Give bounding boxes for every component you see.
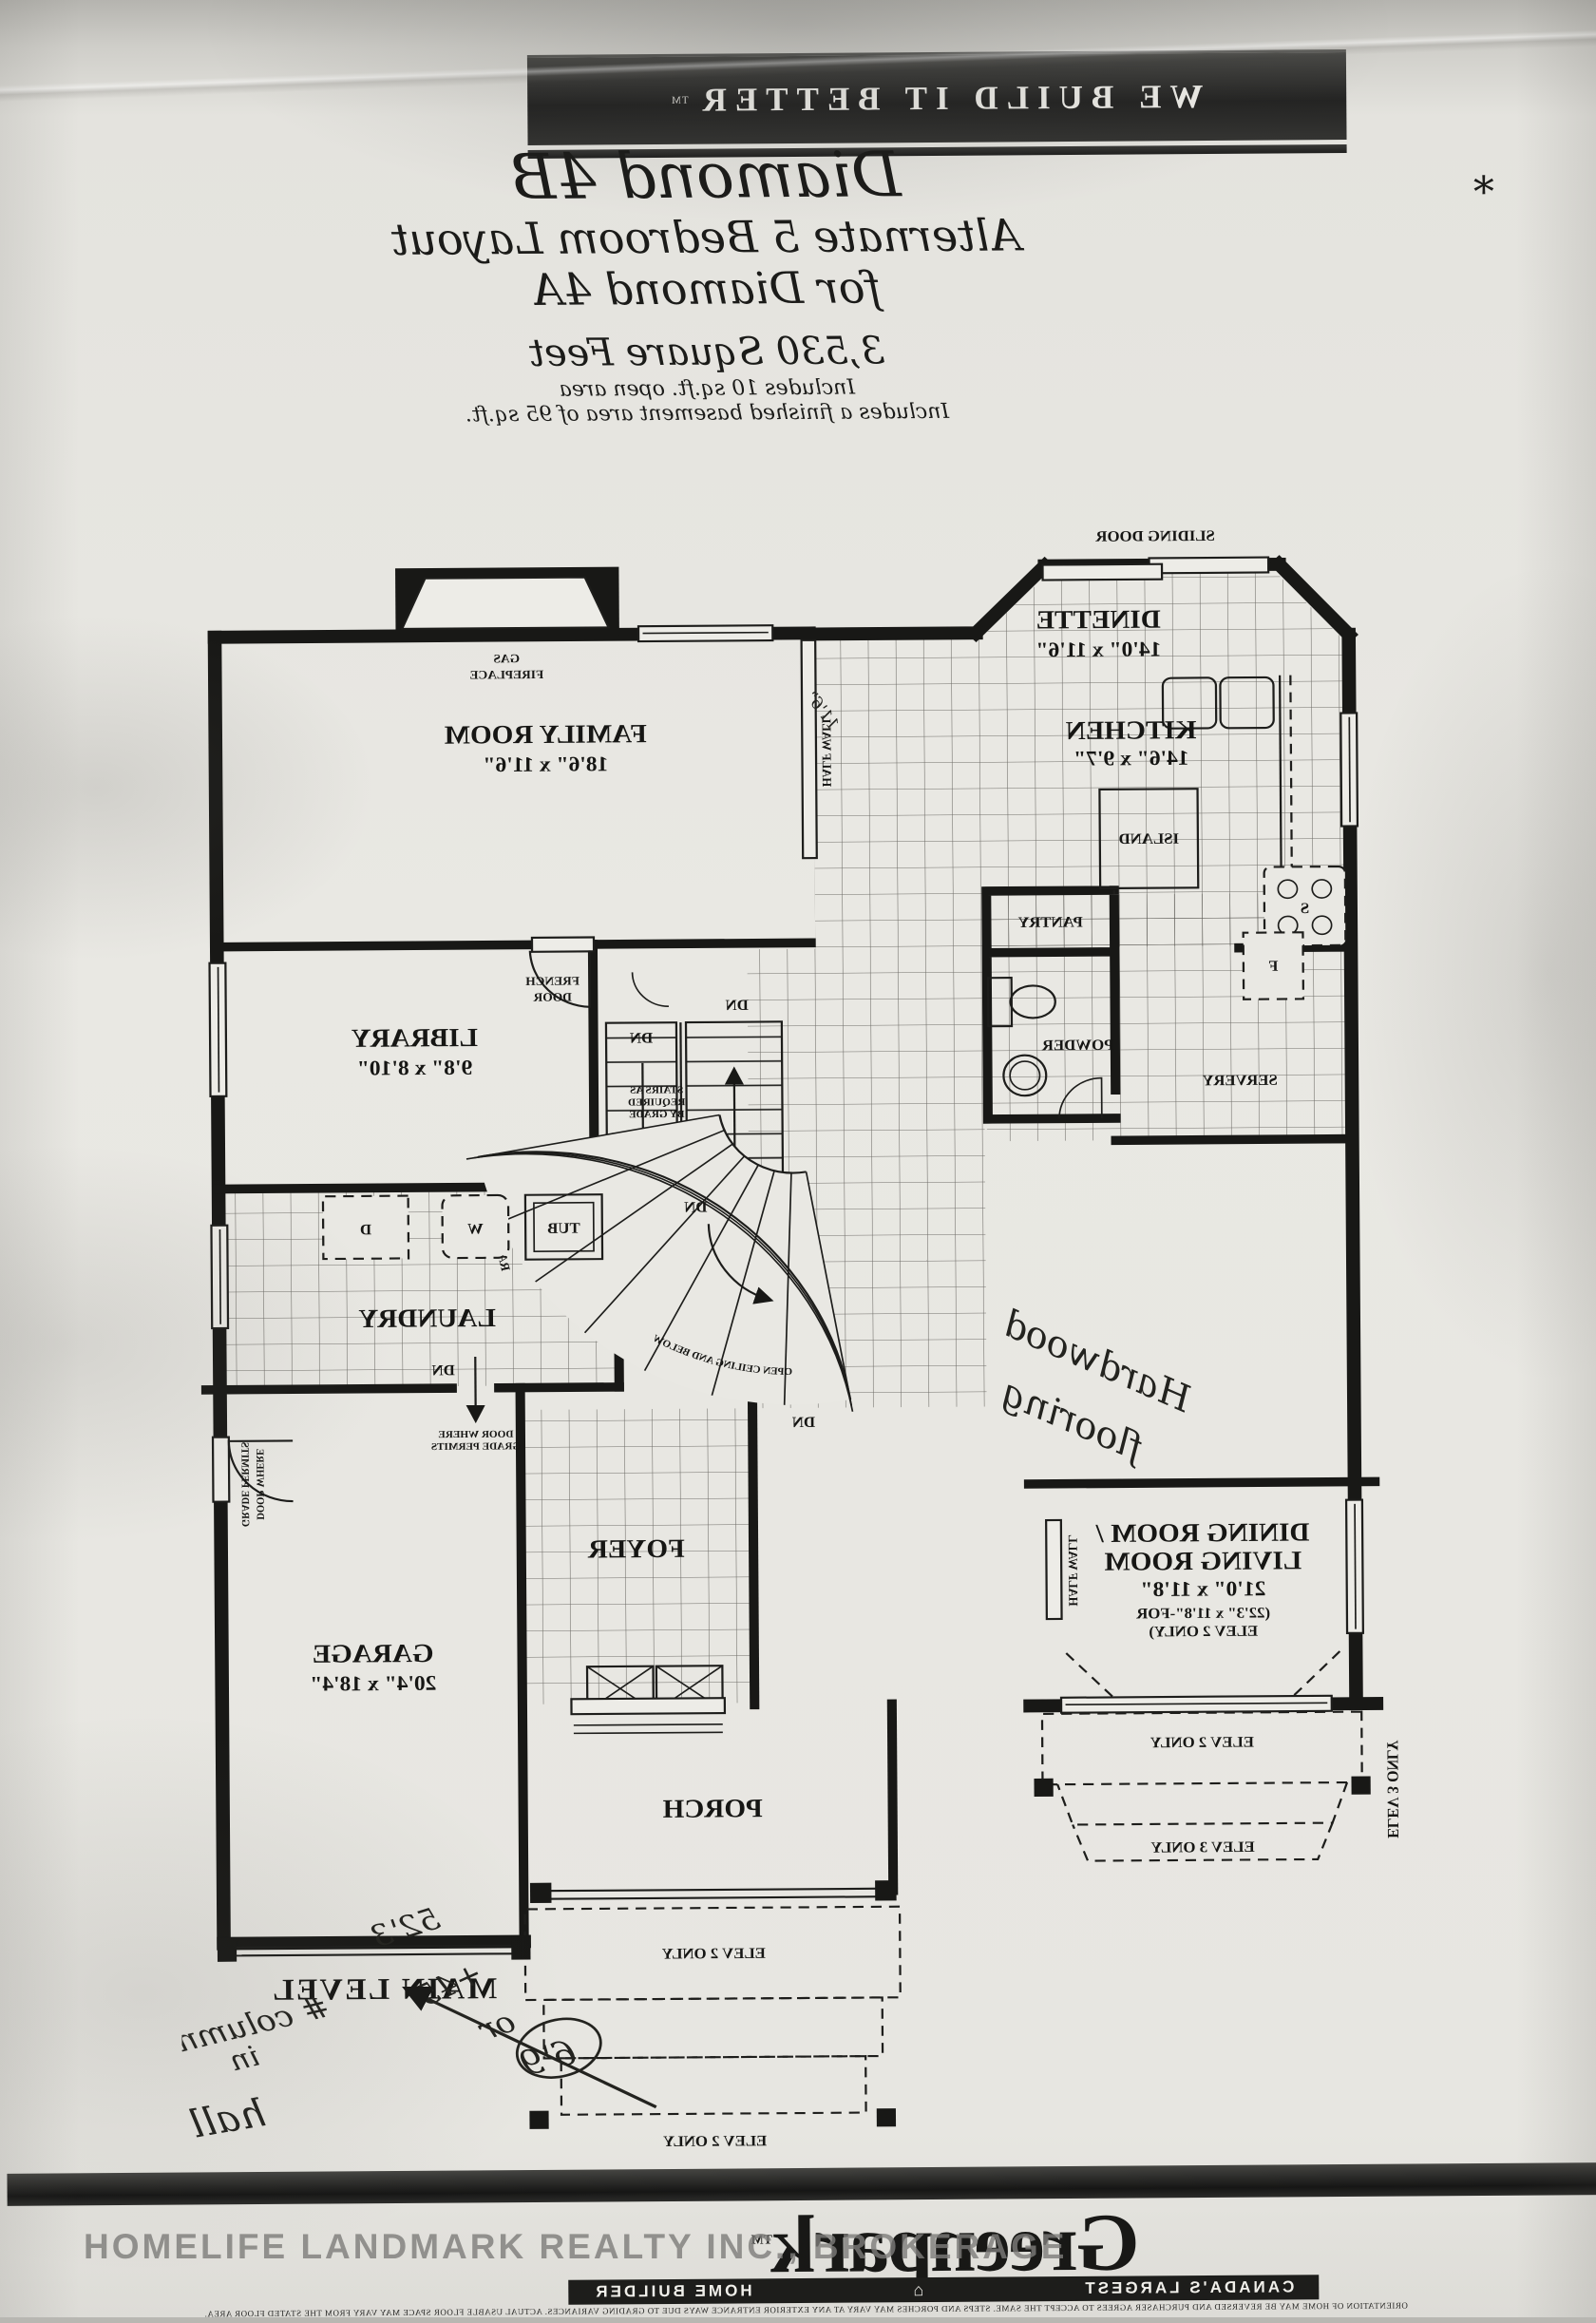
dryer-label: D [360, 1221, 371, 1239]
porch: ELEV 2 ONLY ELEV 2 ONLY [524, 1880, 901, 2151]
dining-alt1: (22'3" x 11'8"-FOR [1136, 1604, 1270, 1622]
family-dims: 18'6" x 11'6" [483, 752, 608, 776]
library-name: LIBRARY [351, 1024, 479, 1054]
garage-dims: 20'4" x 18'4" [310, 1671, 436, 1695]
french-door-label-2: DOOR [533, 990, 572, 1004]
dinette-dims: 14'0" x 11'6" [1035, 638, 1161, 661]
foyer-label: FOYER [587, 1534, 685, 1564]
fridge-label: F [1268, 957, 1278, 975]
hw-c3: hall wall. [171, 2089, 269, 2165]
garage-door-grade-2: GRADE PERMITS [238, 1442, 251, 1527]
floor-plan-sheet: WE BUILD IT BETTERTM Diamond 4B Alternat… [0, 0, 1596, 2323]
servery-label: SERVERY [1202, 1071, 1277, 1089]
builder-tagline-bar: CANADA'S LARGEST ⌂ HOME BUILDER [568, 2275, 1319, 2305]
dn-label-hall: DN [630, 1029, 654, 1047]
powder-label: POWDER [1042, 1036, 1114, 1054]
elev2-bay: ELEV 2 ONLY [1149, 1733, 1254, 1751]
dining-line2: LIVING ROOM [1104, 1547, 1301, 1577]
plan-subtitle-1: Alternate 5 Bedroom Layout [269, 208, 1143, 265]
hw-m3: or [472, 2004, 520, 2048]
dining-dims: 21'0" x 11'8" [1140, 1577, 1265, 1601]
washer-label: W [466, 1220, 484, 1238]
stairs-note-3: BY GRADE [629, 1109, 684, 1120]
stairs-note-1: STAIRS AS [630, 1085, 683, 1096]
grade-door-label-2: GRADE PERMITS [431, 1441, 521, 1453]
watermark: HOMELIFE LANDMARK REALTY INC., BROKERAGE [84, 2227, 1509, 2267]
library-dims: 9'8" x 8'10" [357, 1056, 473, 1079]
dn-label-foyer: DN [792, 1413, 816, 1431]
laundry-label: LAUNDRY [358, 1304, 496, 1334]
floor-plan-svg: GAS FIREPLACE SLIDING DOOR [171, 523, 1460, 2165]
dn-label-garage: DN [431, 1361, 455, 1380]
gas-fireplace-label-2: FIREPLACE [469, 667, 543, 681]
sliding-door-label: SLIDING DOOR [1095, 526, 1215, 544]
garage-name: GARAGE [313, 1640, 434, 1669]
dining-bay-steps: ELEV 2 ONLY ELEV 3 ONLY ELEV 3 ONLY [1034, 1651, 1403, 1861]
dn-label-run: DN [725, 996, 749, 1014]
dn-label-curve: DN [684, 1198, 708, 1216]
elev3-bay: ELEV 3 ONLY [1150, 1837, 1255, 1856]
fireplace: GAS FIREPLACE [395, 567, 619, 682]
family-name: FAMILY ROOM [444, 720, 647, 751]
grade-door-label-1: DOOR WHERE [438, 1429, 513, 1440]
tagline-right: HOME BUILDER [593, 2281, 751, 2301]
elev2-porch-low: ELEV 2 ONLY [663, 2132, 768, 2150]
tub-label: TUB [547, 1219, 580, 1237]
kitchen-name: KITCHEN [1065, 716, 1196, 746]
plan-title: Diamond 4B [269, 138, 1143, 214]
pantry-label: PANTRY [1017, 913, 1082, 931]
banner-text: WE BUILD IT BETTER [693, 78, 1203, 120]
plan-subtitle-2: for Diamond 4A [269, 259, 1143, 316]
kitchen-dims: 14'6" x 9'7" [1073, 746, 1189, 770]
hw-c2: in [226, 2040, 262, 2078]
gas-fireplace-label-1: GAS [493, 652, 520, 666]
elev2-porch: ELEV 2 ONLY [661, 1944, 766, 1962]
sink-label: S [1301, 899, 1309, 917]
photo-backdrop: WE BUILD IT BETTERTM Diamond 4B Alternat… [0, 0, 1596, 2317]
island-label: ISLAND [1118, 829, 1179, 847]
banner-tm: TM [671, 95, 689, 106]
stairs-note-2: REQUIRED [628, 1096, 686, 1108]
plan-note-2: Includes a finished basement area of 95 … [270, 398, 1144, 428]
garage-door-grade-1: DOOR WHERE [254, 1449, 266, 1520]
handwritten-asterisk: * [1473, 168, 1494, 217]
porch-label: PORCH [662, 1795, 762, 1824]
tagline-left: CANADA'S LARGEST [1082, 2277, 1294, 2298]
dining-line1: DINING ROOM / [1094, 1518, 1309, 1549]
builder-banner: WE BUILD IT BETTERTM [527, 49, 1347, 145]
dining-alt2: ELEV 2 ONLY) [1149, 1622, 1258, 1640]
french-door-label-1: FRENCH [525, 974, 579, 988]
plan-area: 3,530 Square Feet [270, 324, 1144, 379]
title-block: Diamond 4B Alternate 5 Bedroom Layout fo… [269, 138, 1145, 428]
half-wall-dining: HALF WALL [1066, 1534, 1081, 1607]
dinette-name: DINETTE [1036, 605, 1161, 635]
home-icon: ⌂ [910, 2280, 923, 2300]
elev3-side: ELEV 3 ONLY [1383, 1740, 1402, 1838]
